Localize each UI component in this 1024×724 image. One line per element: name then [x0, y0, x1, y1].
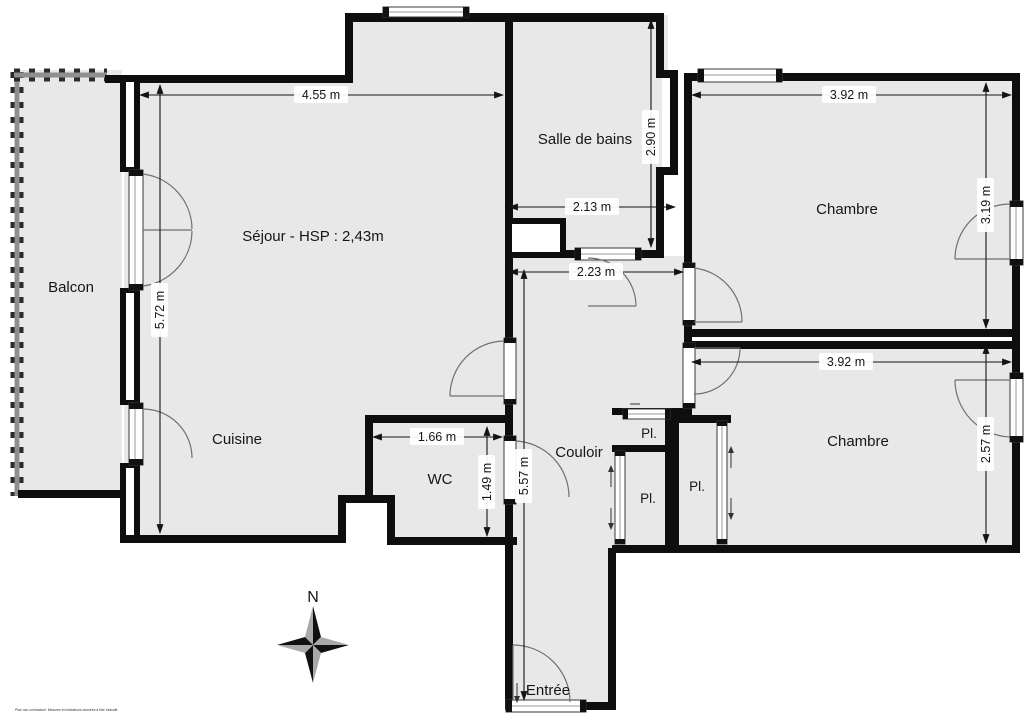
room-label-wc: WC: [428, 471, 453, 488]
dim-sdb-width: 2.13 m: [573, 200, 611, 214]
compass-rose: [277, 606, 349, 683]
room-label-chambre-2: Chambre: [827, 433, 889, 450]
room-label-sejour: Séjour - HSP : 2,43m: [242, 228, 383, 245]
room-label-salle-de-bains: Salle de bains: [538, 131, 632, 148]
exterior-notch: [346, 503, 388, 543]
dim-couloir-length: 5.57 m: [517, 457, 531, 495]
dim-chambre2-width: 3.92 m: [827, 355, 865, 369]
dim-sejour-width: 4.55 m: [302, 88, 340, 102]
room-label-cuisine: Cuisine: [212, 431, 262, 448]
room-sejour-bay-floor: [349, 15, 509, 79]
balcony-bottom-wall: [18, 490, 124, 498]
dim-chambre1-width: 3.92 m: [830, 88, 868, 102]
room-label-pl-top: Pl.: [641, 426, 657, 441]
dim-wc-depth: 1.49 m: [480, 463, 494, 501]
window-chambre1-top: [698, 69, 782, 82]
room-label-pl-left: Pl.: [640, 491, 656, 506]
dim-wc-width: 1.66 m: [418, 430, 456, 444]
window-sejour-bay: [383, 7, 469, 17]
compass-north-label: N: [307, 589, 319, 606]
room-label-entree: Entrée: [526, 682, 570, 699]
dim-sdb-height: 2.90 m: [644, 118, 658, 156]
room-label-balcon: Balcon: [48, 279, 94, 296]
disclaimer-text: Plan non contractuel. Mesures et indicat…: [15, 708, 117, 712]
window-sdb: [575, 248, 641, 260]
double-wall-gap: [684, 337, 1020, 341]
dim-chambre2-depth: 2.57 m: [979, 425, 993, 463]
room-label-pl-right: Pl.: [689, 479, 705, 494]
floorplan-canvas: 4.55 m 5.72 m 2.90 m 2.13 m 2.23 m 3.92 …: [0, 0, 1024, 724]
dim-chambre1-depth: 3.19 m: [979, 186, 993, 224]
dim-sejour-height: 5.72 m: [153, 291, 167, 329]
sdb-duct-box: [509, 221, 563, 255]
room-sejour-cuisine-floor: [124, 79, 509, 537]
room-label-chambre-1: Chambre: [816, 201, 878, 218]
dim-couloir-width: 2.23 m: [577, 265, 615, 279]
room-label-couloir: Couloir: [555, 444, 603, 461]
floorplan-page: 4.55 m 5.72 m 2.90 m 2.13 m 2.23 m 3.92 …: [0, 0, 1024, 724]
